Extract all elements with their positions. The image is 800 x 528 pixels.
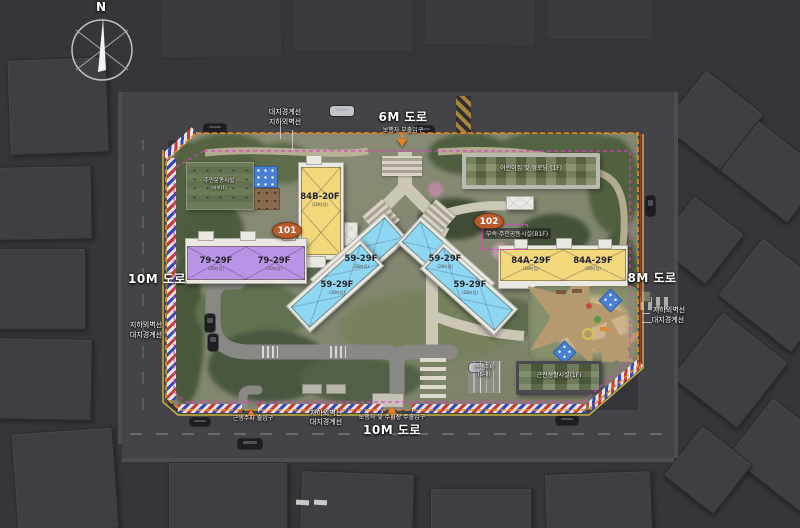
entrance-label-bottom: 보행자 및 주차장 주출입구 <box>359 415 425 421</box>
car <box>208 334 218 351</box>
road-10m-left <box>122 92 168 444</box>
site-plan-canvas: 101 102 대지경계선 지하외벽선 6M 도로 보행자 부출입구 10M 도… <box>0 0 800 528</box>
boundary-label-site-bottom: 대지경계선 <box>310 419 342 426</box>
trash-bin <box>641 291 651 302</box>
retail-parking-sub: (5대) <box>478 373 491 379</box>
bench <box>572 289 582 293</box>
unit-type: 59-29F <box>345 254 378 264</box>
car <box>646 196 655 216</box>
unit-label-59-2: 59-29F (2B타입) <box>321 281 354 295</box>
unit-sub: (2B타입) <box>511 267 551 271</box>
playground-stars <box>528 286 640 362</box>
leader-line <box>292 130 293 150</box>
city-block <box>159 0 282 59</box>
unit-label-84b: 84B-20F (1B타입) <box>300 193 339 207</box>
unit-type: 59-29F <box>321 280 354 290</box>
stepping-stones <box>262 346 278 358</box>
building-core <box>240 231 256 241</box>
shade-canopy <box>254 166 278 188</box>
stepping-stones <box>330 346 346 358</box>
unit-sub: (2B타입) <box>321 291 354 295</box>
road-label-right: 8M 도로 <box>627 272 676 285</box>
unit-type: 79-29F <box>200 256 233 266</box>
road-label-bottom: 10M 도로 <box>363 424 421 437</box>
building-core <box>598 239 612 249</box>
boundary-label-site-left: 대지경계선 <box>130 332 162 339</box>
city-block <box>544 470 653 528</box>
unit-sub: (2B타입) <box>345 265 378 269</box>
sports-deck-label: 주민운동시설 <box>204 179 234 185</box>
boundary-label-site-right: 대지경계선 <box>652 317 684 324</box>
car <box>238 439 262 449</box>
unit-type: 84A-29F <box>573 256 613 266</box>
unit-type: 84B-20F <box>300 192 339 202</box>
city-block <box>423 0 536 47</box>
building-84b <box>301 167 341 255</box>
unit-type: 79-29F <box>258 256 291 266</box>
car <box>204 124 226 133</box>
unit-sub: (1B타입) <box>300 203 339 207</box>
city-block <box>546 0 653 40</box>
road-label-left: 10M 도로 <box>128 273 186 286</box>
building-core <box>198 231 214 241</box>
curb <box>122 458 674 462</box>
stairs <box>382 156 422 176</box>
car <box>556 416 578 425</box>
entrance-arrow-bottom-head <box>387 406 397 414</box>
city-block <box>0 248 86 330</box>
boundary-label-basement-bottom: 지하외벽선 <box>310 410 342 417</box>
road-label-top: 6M 도로 <box>378 111 427 124</box>
compass-north-label: N <box>96 1 106 14</box>
boundary-label-basement-left: 지하외벽선 <box>130 322 162 329</box>
unit-label-79-2: 79-29F (2B타입) <box>258 257 291 271</box>
unit-type: 59-29F <box>454 280 487 290</box>
play-equipment <box>586 303 592 309</box>
boundary-label-site-tl: 대지경계선 <box>269 109 301 116</box>
unit-sub: (2B타입) <box>429 265 462 269</box>
unit-label-84a-2: 84A-29F (2B타입) <box>573 257 613 271</box>
bench <box>556 290 566 294</box>
service-entrance-label: 근생주차 출입구 <box>233 416 274 422</box>
pergola <box>506 196 534 210</box>
city-block <box>0 165 93 241</box>
boundary-label-basement-right: 지하외벽선 <box>653 307 685 314</box>
unit-sub: (2B타입) <box>258 267 291 271</box>
leader-line <box>642 322 652 323</box>
city-block <box>0 337 93 421</box>
car <box>205 314 215 332</box>
entrance-label-top: 보행자 부출입구 <box>383 128 424 134</box>
crosswalk-internal <box>420 358 446 398</box>
unit-label-59-1: 59-29F (2B타입) <box>345 255 378 269</box>
sports-deck-sub: (지하1F) <box>211 186 226 190</box>
unit-type: 84A-29F <box>511 256 551 266</box>
car <box>190 418 210 426</box>
unit-sub: (2B타입) <box>454 291 487 295</box>
block-badge-101: 101 <box>272 222 302 239</box>
unit-sub: (2B타입) <box>573 267 613 271</box>
unit-label-84a-1: 84A-29F (2B타입) <box>511 257 551 271</box>
truck <box>330 106 354 116</box>
unit-sub: (2B타입) <box>200 267 233 271</box>
community-annex-label: 부속 주민공동시설(B1F) <box>483 228 551 239</box>
unit-type: 59-29F <box>429 254 462 264</box>
leader-line <box>642 313 650 314</box>
curb-hatch-bottom <box>412 404 586 413</box>
parked-car-mark <box>314 500 327 506</box>
bike-rack <box>302 384 322 394</box>
city-block <box>168 462 288 528</box>
building-core <box>306 155 322 165</box>
city-block <box>11 427 120 528</box>
play-equipment <box>594 316 601 323</box>
retail-label: 근린생활시설(1F) <box>536 373 581 379</box>
unit-label-79-1: 79-29F (2B타입) <box>200 257 233 271</box>
parked-car-mark <box>296 500 309 506</box>
boundary-label-basement-tl: 지하외벽선 <box>269 119 301 126</box>
curb-hatch-bottom <box>178 404 242 413</box>
curb <box>118 92 122 444</box>
unit-label-59-4: 59-29F (2B타입) <box>454 281 487 295</box>
wood-terrace <box>254 188 280 210</box>
play-equipment <box>582 328 594 340</box>
entrance-arrow-top-head <box>397 139 407 147</box>
building-core <box>556 238 572 249</box>
city-block <box>430 488 532 528</box>
play-equipment <box>600 327 609 331</box>
speed-bump-hatch <box>456 96 471 138</box>
daycare-senior-label: 어린이집 및 경로당 (1F) <box>500 166 562 172</box>
bike-rack <box>326 384 346 394</box>
retail-parking-label: 근생주차 <box>474 366 494 372</box>
city-block <box>292 0 414 52</box>
unit-label-59-3: 59-29F (2B타입) <box>429 255 462 269</box>
compass-icon <box>58 4 146 92</box>
